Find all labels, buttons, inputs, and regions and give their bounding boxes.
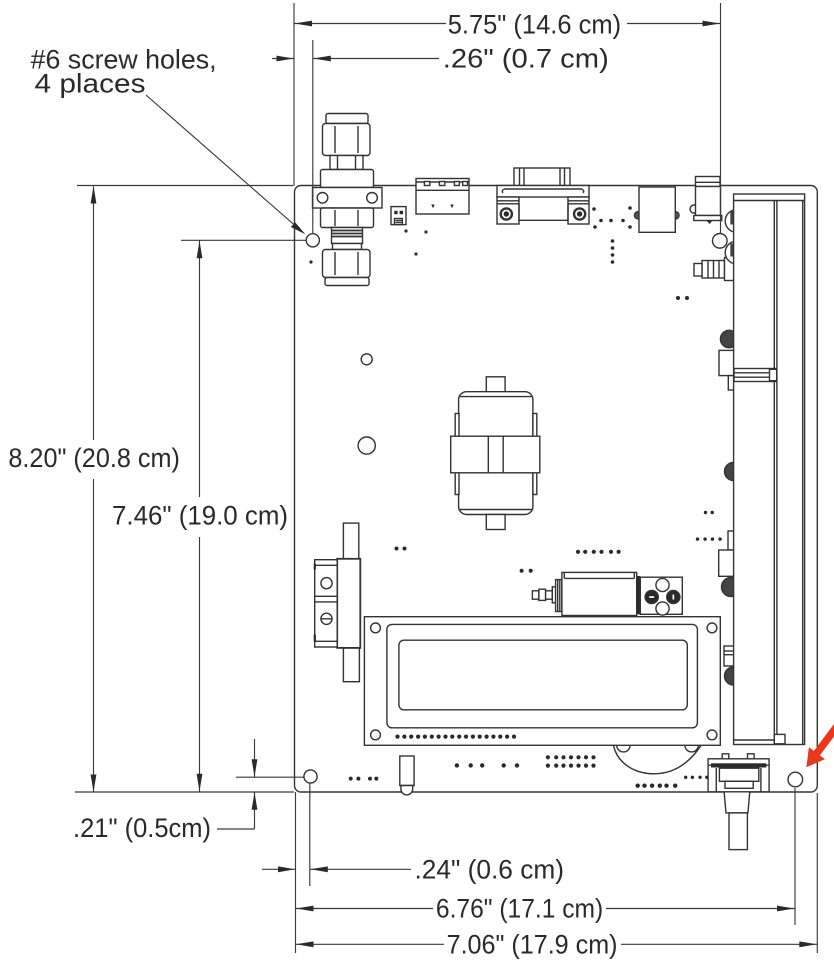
svg-text:8.20" (20.8 cm): 8.20" (20.8 cm): [8, 443, 180, 473]
svg-text:.26" (0.7 cm): .26" (0.7 cm): [443, 44, 609, 74]
svg-text:7.46" (19.0 cm): 7.46" (19.0 cm): [112, 501, 288, 531]
svg-text:6.76" (17.1 cm): 6.76" (17.1 cm): [436, 894, 603, 924]
svg-text:5.75" (14.6 cm): 5.75" (14.6 cm): [448, 9, 621, 39]
svg-text:7.06" (17.9 cm): 7.06" (17.9 cm): [447, 930, 618, 960]
svg-text:.21" (0.5cm): .21" (0.5cm): [73, 813, 211, 843]
svg-text:.24" (0.6 cm): .24" (0.6 cm): [415, 855, 565, 885]
svg-text:4 places: 4 places: [35, 69, 146, 99]
